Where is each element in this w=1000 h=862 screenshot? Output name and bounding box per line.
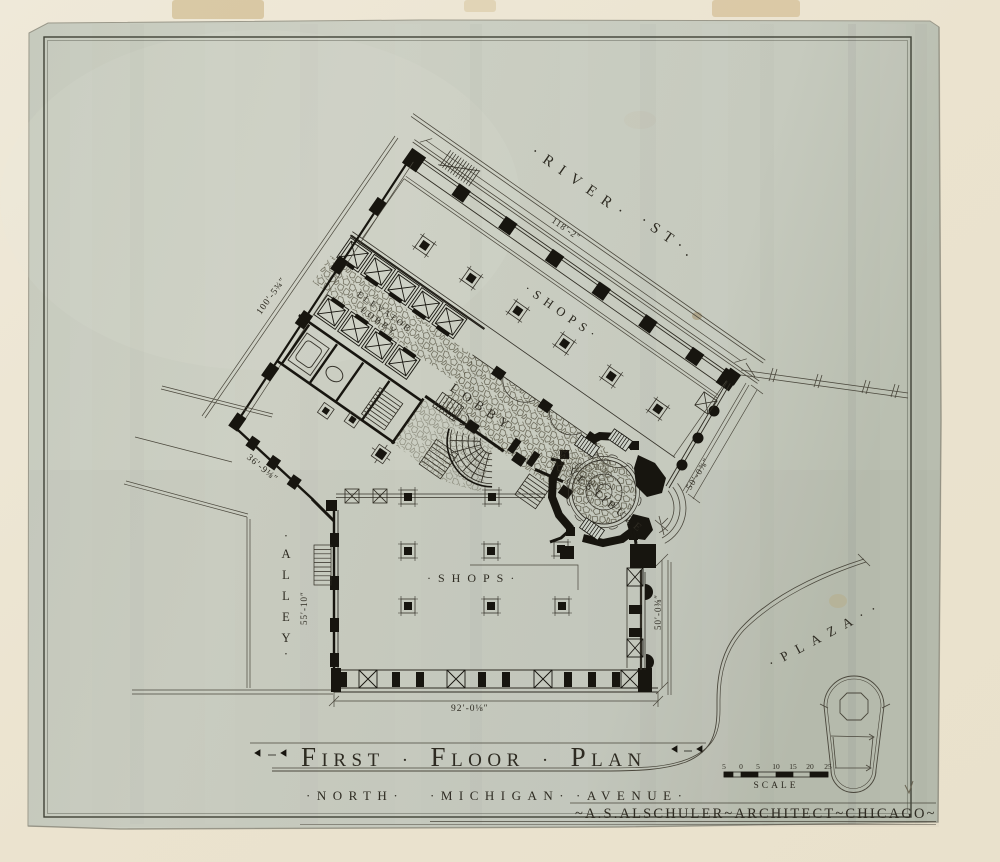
svg-text:·MICHIGAN·: ·MICHIGAN· bbox=[430, 788, 570, 803]
svg-text:55′-10″: 55′-10″ bbox=[299, 591, 309, 625]
svg-text:·AVENUE·: ·AVENUE· bbox=[576, 788, 688, 803]
svg-text:·NORTH·: ·NORTH· bbox=[306, 788, 404, 803]
svg-text:·: · bbox=[284, 529, 288, 543]
svg-text:SCALE: SCALE bbox=[753, 781, 798, 791]
svg-text:·SHOPS·: ·SHOPS· bbox=[427, 571, 521, 585]
svg-text:·: · bbox=[284, 647, 288, 661]
svg-text:A: A bbox=[281, 547, 290, 561]
svg-text:25: 25 bbox=[824, 762, 832, 771]
svg-text:5: 5 bbox=[722, 762, 726, 771]
svg-text:92′-0⅛″: 92′-0⅛″ bbox=[451, 704, 489, 714]
svg-text:50′-0⅜″: 50′-0⅜″ bbox=[653, 594, 663, 630]
svg-text:L: L bbox=[282, 589, 290, 603]
svg-text:5: 5 bbox=[756, 762, 760, 771]
svg-text:E: E bbox=[282, 610, 290, 624]
svg-text:20: 20 bbox=[806, 762, 814, 771]
svg-text:Y: Y bbox=[281, 631, 290, 645]
svg-text:~A.S.ALSCHULER~ARCHITECT~CHICA: ~A.S.ALSCHULER~ARCHITECT~CHICAGO~ bbox=[575, 806, 935, 822]
svg-text:15: 15 bbox=[789, 762, 797, 771]
svg-text:0: 0 bbox=[739, 762, 743, 771]
svg-text:10: 10 bbox=[772, 762, 780, 771]
svg-text:L: L bbox=[282, 568, 290, 582]
